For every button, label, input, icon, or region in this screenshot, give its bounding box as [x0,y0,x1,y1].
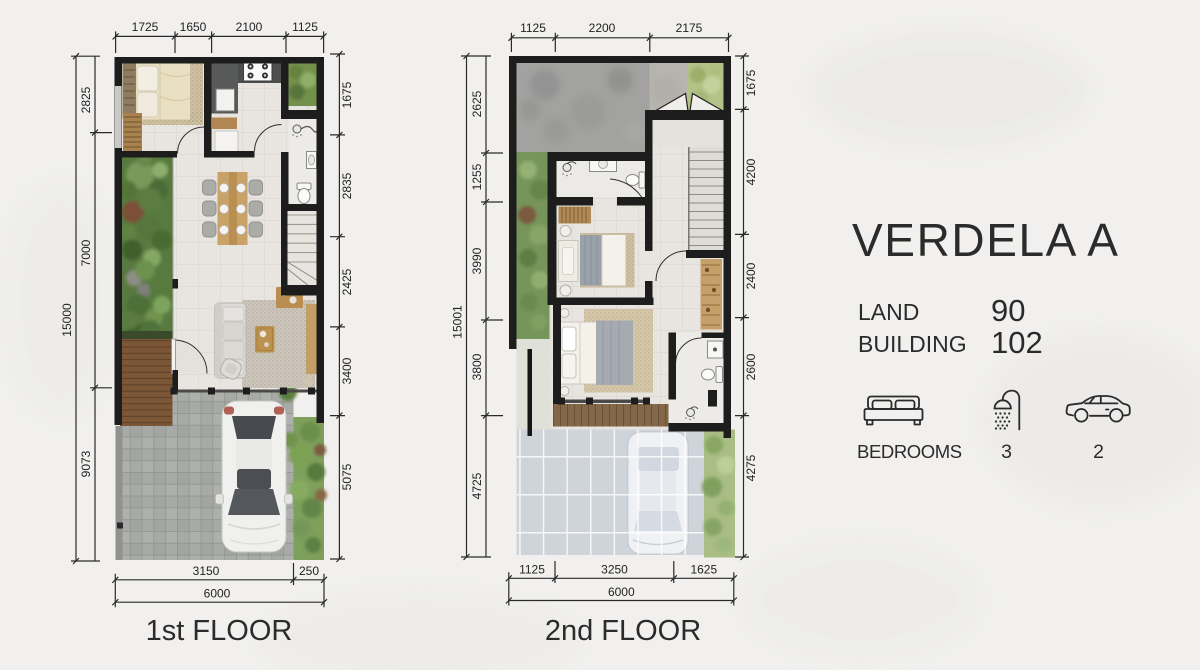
svg-text:1125: 1125 [519,563,545,577]
svg-text:1255: 1255 [470,163,484,190]
svg-text:9073: 9073 [79,450,93,477]
svg-text:15001: 15001 [451,305,465,339]
svg-text:1675: 1675 [340,81,354,108]
svg-text:VERDELA A: VERDELA A [852,214,1120,266]
svg-text:7000: 7000 [79,239,93,266]
svg-text:4200: 4200 [744,158,758,185]
svg-text:2835: 2835 [340,172,354,199]
svg-text:3800: 3800 [470,353,484,380]
svg-text:1125: 1125 [292,20,318,34]
svg-text:2400: 2400 [744,262,758,289]
svg-text:6000: 6000 [204,587,231,601]
svg-text:1725: 1725 [132,20,159,34]
svg-text:2100: 2100 [236,20,263,34]
svg-text:102: 102 [991,325,1043,360]
svg-text:90: 90 [991,293,1025,328]
svg-text:BUILDING: BUILDING [858,331,967,357]
svg-text:2200: 2200 [589,21,616,35]
svg-text:3990: 3990 [470,247,484,274]
svg-text:1st FLOOR: 1st FLOOR [146,615,293,647]
svg-text:BEDROOMS: BEDROOMS [857,441,962,462]
svg-text:3400: 3400 [340,357,354,384]
svg-text:LAND: LAND [858,299,919,325]
svg-text:2825: 2825 [79,86,93,113]
svg-text:1125: 1125 [520,21,546,35]
svg-text:3250: 3250 [601,563,628,577]
svg-text:1675: 1675 [744,69,758,96]
svg-text:2: 2 [1093,441,1104,463]
svg-text:3: 3 [1001,441,1012,463]
svg-text:3150: 3150 [193,564,220,578]
svg-text:5075: 5075 [340,463,354,490]
svg-text:2425: 2425 [340,268,354,295]
svg-text:15000: 15000 [60,303,74,337]
svg-text:250: 250 [299,564,319,578]
svg-text:2nd FLOOR: 2nd FLOOR [545,615,701,647]
svg-text:1625: 1625 [690,563,717,577]
svg-text:2600: 2600 [744,353,758,380]
svg-text:4725: 4725 [470,472,484,499]
svg-text:2625: 2625 [470,90,484,117]
svg-text:2175: 2175 [676,21,703,35]
svg-text:1650: 1650 [180,20,207,34]
svg-text:6000: 6000 [608,585,635,599]
svg-text:4275: 4275 [744,454,758,481]
